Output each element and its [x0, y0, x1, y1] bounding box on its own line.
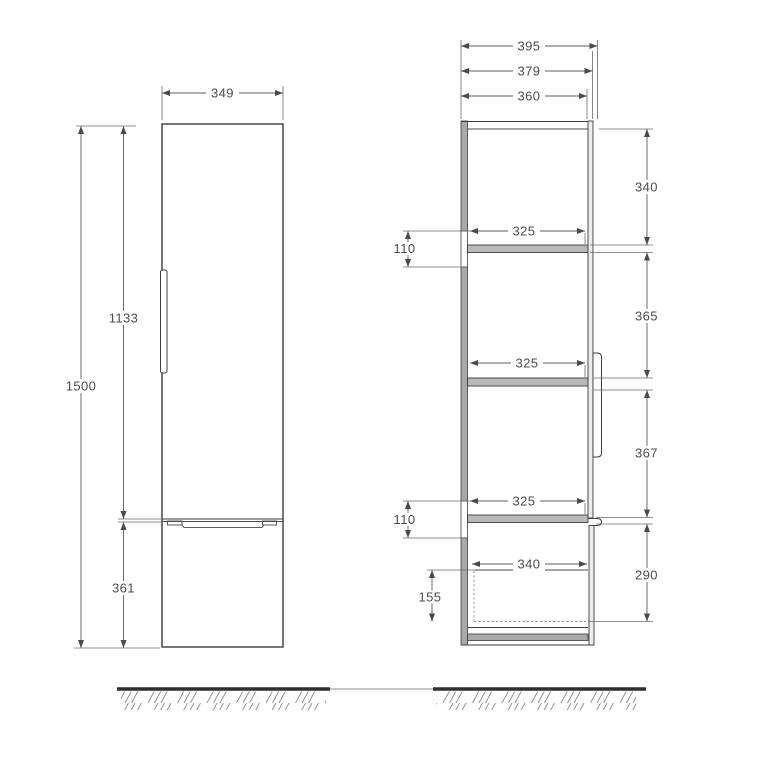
- front-view: 349 1500 1133 361: [62, 86, 283, 648]
- dim-label-top-compartment: 340: [635, 180, 658, 195]
- side-plinth-band: [468, 634, 589, 641]
- dim-label-front-height: 1500: [66, 379, 97, 394]
- side-door-panel: [588, 121, 593, 518]
- dim-label-depth-with-door: 379: [518, 64, 541, 79]
- dim-label-bottom-compartment: 290: [635, 568, 658, 583]
- dim-front-drawer-height: 361: [107, 522, 161, 648]
- ground-right-hatching: [436, 692, 636, 711]
- side-door-handle: [593, 353, 602, 457]
- side-back-panel: [461, 121, 468, 645]
- dim-label-drawer-depth: 340: [518, 557, 541, 572]
- dim-label-depth-overall: 395: [518, 39, 541, 54]
- dim-label-shelf2-depth: 325: [516, 356, 539, 371]
- side-shelf-3: [468, 515, 589, 523]
- dim-side-depths: 395 379 360: [461, 39, 598, 119]
- side-view: 395 379 360 340 365 367: [390, 39, 663, 645]
- side-drawer-front-lip: [588, 519, 602, 526]
- front-cabinet-outline: [162, 124, 283, 647]
- technical-drawing-page: 349 1500 1133 361: [0, 0, 768, 768]
- dim-front-upper-section: 1133: [104, 126, 161, 519]
- dim-label-shelf3-depth: 325: [513, 494, 536, 509]
- dim-label-front-upper-section: 1133: [109, 311, 139, 326]
- dim-label-depth-internal: 360: [518, 89, 541, 104]
- dim-drawer-internal: 340 155: [415, 557, 587, 622]
- dim-front-width: 349: [162, 86, 283, 120]
- side-drawer-front-panel: [589, 526, 594, 646]
- dim-label-rail-upper: 110: [394, 241, 416, 256]
- side-shelf-2: [468, 378, 589, 386]
- dim-label-front-drawer-height: 361: [112, 581, 135, 596]
- side-shelf-1: [468, 245, 589, 253]
- dim-label-lower-compartment: 367: [635, 446, 658, 461]
- dim-label-rail-lower: 110: [394, 512, 416, 527]
- dim-front-height: 1500: [62, 126, 160, 648]
- dim-label-front-width: 349: [211, 86, 234, 101]
- dim-label-shelf1-depth: 325: [513, 224, 536, 239]
- cabinet-technical-drawing: 349 1500 1133 361: [0, 0, 768, 768]
- dim-mount-rails: 110 110: [390, 231, 467, 538]
- dim-label-drawer-height: 155: [419, 590, 442, 605]
- side-drawer-hidden-outline: [474, 570, 588, 622]
- front-door-handle: [161, 270, 168, 373]
- dim-label-middle-compartment: 365: [635, 309, 658, 324]
- ground-left-hatching: [121, 692, 326, 711]
- ground-line: [117, 689, 646, 710]
